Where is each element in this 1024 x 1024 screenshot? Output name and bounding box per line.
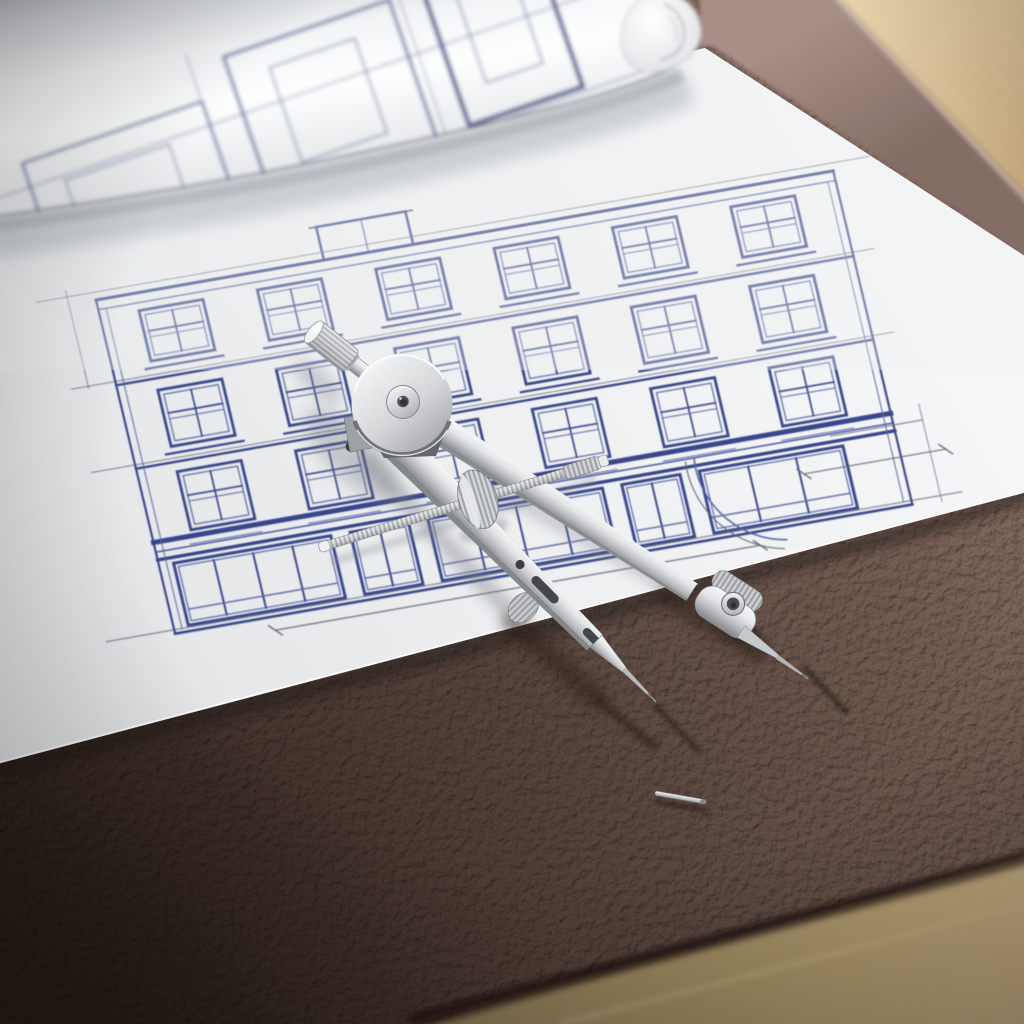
photo-canvas: Blueprint of a building facade with a st… xyxy=(0,0,1024,1024)
photo-stage: Architectural blueprint of a classical b… xyxy=(0,0,1024,1024)
vignette xyxy=(0,0,1024,1024)
